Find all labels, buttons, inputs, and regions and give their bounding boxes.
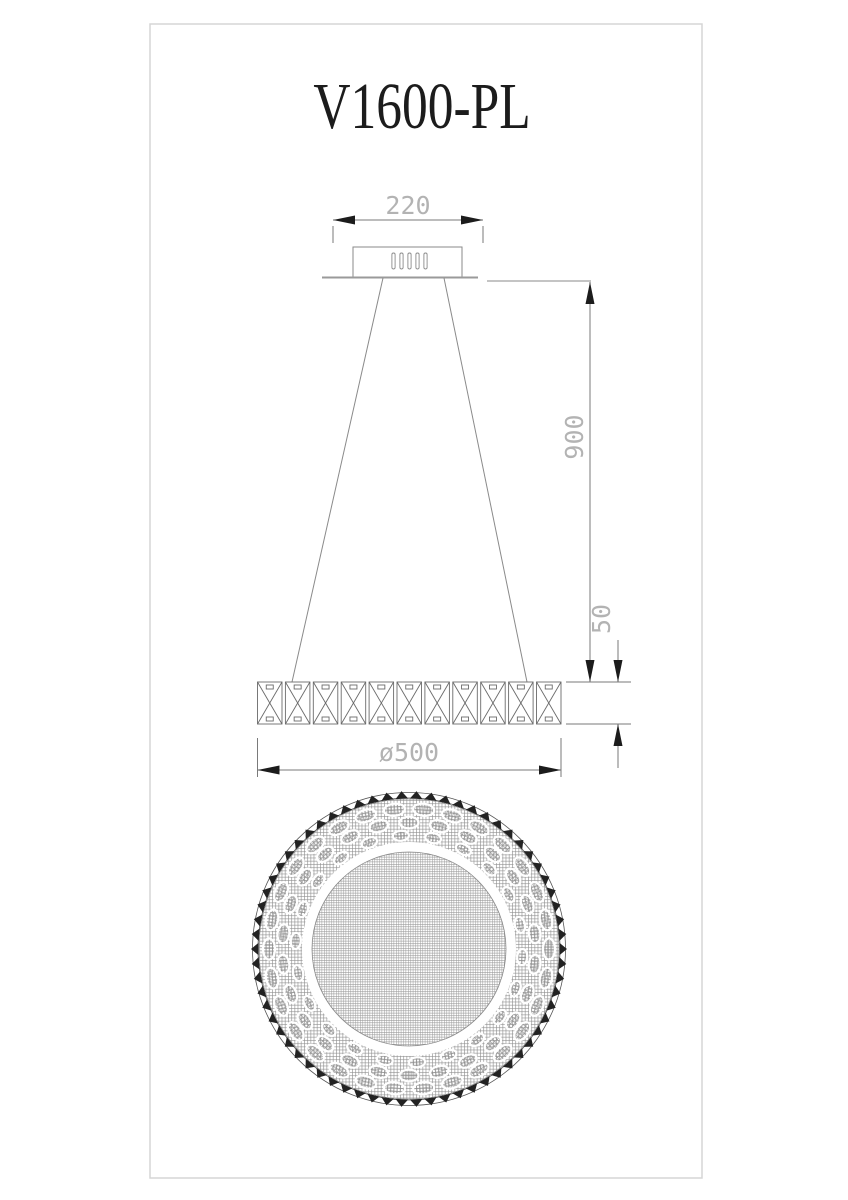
canopy xyxy=(322,247,591,281)
pebble-crystal xyxy=(409,1057,426,1068)
segment-clip xyxy=(378,685,385,689)
dim-label-canopy-width: 220 xyxy=(385,191,430,220)
pebble-crystal xyxy=(543,939,555,960)
segment-clip xyxy=(350,717,357,721)
bottom-view xyxy=(251,791,567,1107)
drawing-page: V1600-PL 220 xyxy=(0,0,848,1200)
arrow-left-icon xyxy=(258,766,280,775)
dim-diameter: ø500 xyxy=(258,738,562,777)
vent-slot xyxy=(408,253,411,269)
dim-label-diameter: ø500 xyxy=(379,738,439,767)
arrow-right-icon xyxy=(461,216,483,225)
pebble-crystal xyxy=(263,939,275,960)
arrow-down-icon xyxy=(614,660,623,682)
segment-clip xyxy=(489,717,496,721)
segment-clip xyxy=(294,717,301,721)
arrow-up-icon xyxy=(614,724,623,746)
model-title: V1600-PL xyxy=(313,69,530,143)
arrow-left-icon xyxy=(333,216,355,225)
segment-clip xyxy=(266,717,273,721)
pebble-crystal xyxy=(290,933,301,950)
segment-clip xyxy=(434,717,441,721)
dim-ring-height: 50 xyxy=(566,604,631,768)
arrow-down-icon xyxy=(586,660,595,682)
segment-clip xyxy=(489,685,496,689)
vent-slot xyxy=(416,253,419,269)
suspension-wire-left xyxy=(292,278,383,682)
vent-slot xyxy=(392,253,395,269)
bead-icon xyxy=(559,943,567,956)
segment-clip xyxy=(434,685,441,689)
vent-slot xyxy=(400,253,403,269)
vent-slot xyxy=(424,253,427,269)
canopy-vent-slots xyxy=(392,253,427,269)
segment-clip xyxy=(406,717,413,721)
segment-clip xyxy=(517,685,524,689)
arrow-up-icon xyxy=(586,282,595,304)
segment-clip xyxy=(266,685,273,689)
arrow-right-icon xyxy=(539,766,561,775)
dim-label-ring-height: 50 xyxy=(587,604,616,634)
segment-clip xyxy=(322,685,329,689)
diffuser-mesh-disc xyxy=(312,852,506,1046)
segment-clip xyxy=(462,717,469,721)
segment-clip xyxy=(294,685,301,689)
segment-clip xyxy=(545,685,552,689)
crystal-ring-band xyxy=(258,682,562,724)
bead-icon xyxy=(251,943,259,956)
pebble-crystal xyxy=(517,949,528,966)
segment-clip xyxy=(378,717,385,721)
pebble-crystal xyxy=(400,1070,419,1082)
pebble-crystal xyxy=(393,830,410,841)
segment-clip xyxy=(322,717,329,721)
suspension-wire-right xyxy=(444,278,527,682)
segment-clip xyxy=(462,685,469,689)
dim-label-drop: 900 xyxy=(560,414,589,459)
segment-clip xyxy=(545,717,552,721)
segment-clip xyxy=(517,717,524,721)
dim-canopy-width: 220 xyxy=(333,191,483,243)
pebble-crystal xyxy=(400,817,419,829)
segment-clip xyxy=(406,685,413,689)
technical-drawing: V1600-PL 220 xyxy=(0,0,848,1200)
side-view: 220 900 xyxy=(258,191,632,777)
segment-clip xyxy=(350,685,357,689)
